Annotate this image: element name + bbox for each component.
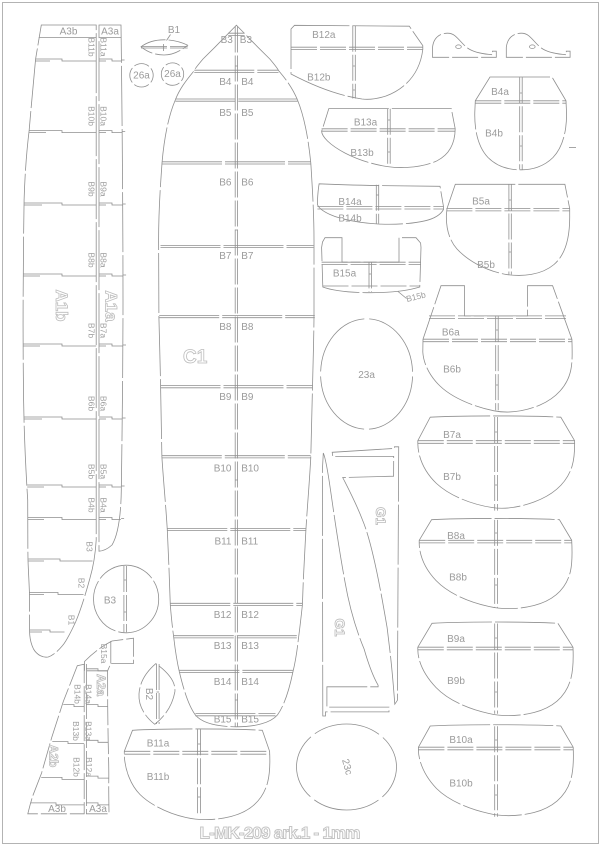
- svg-text:B4a: B4a: [491, 87, 509, 98]
- svg-text:A2a: A2a: [94, 674, 108, 696]
- svg-text:B9b: B9b: [87, 181, 97, 196]
- svg-text:B9a: B9a: [99, 181, 109, 196]
- svg-text:B10b: B10b: [449, 779, 473, 790]
- svg-text:B4a: B4a: [99, 497, 109, 512]
- svg-text:B12a: B12a: [312, 30, 336, 41]
- svg-text:B7: B7: [241, 251, 254, 262]
- svg-text:B6a: B6a: [442, 328, 460, 339]
- svg-text:26a: 26a: [164, 69, 181, 80]
- svg-text:B6b: B6b: [443, 365, 461, 376]
- svg-text:B5: B5: [241, 108, 254, 119]
- svg-text:B7a: B7a: [443, 430, 461, 441]
- svg-text:B4: B4: [241, 77, 254, 88]
- svg-text:B4b: B4b: [87, 497, 97, 512]
- svg-text:B11: B11: [214, 537, 231, 548]
- svg-text:B14b: B14b: [338, 214, 362, 225]
- svg-text:B10a: B10a: [449, 735, 473, 746]
- svg-text:B12b: B12b: [72, 757, 82, 777]
- svg-text:B15: B15: [214, 715, 232, 726]
- svg-text:B4: B4: [219, 77, 232, 88]
- svg-text:B8b: B8b: [87, 252, 97, 267]
- svg-text:B6: B6: [219, 178, 232, 189]
- svg-text:A1b: A1b: [52, 289, 71, 321]
- svg-text:B11b: B11b: [147, 772, 170, 783]
- svg-text:B13: B13: [241, 641, 259, 652]
- svg-text:B10b: B10b: [87, 106, 97, 126]
- svg-text:B6b: B6b: [87, 396, 97, 411]
- svg-text:B6: B6: [241, 178, 254, 189]
- svg-text:B11: B11: [241, 537, 258, 548]
- svg-text:B9: B9: [219, 392, 232, 403]
- svg-text:A3a: A3a: [101, 26, 119, 37]
- svg-text:B2: B2: [77, 578, 87, 589]
- svg-text:B15a: B15a: [333, 269, 357, 280]
- svg-text:A3b: A3b: [48, 804, 66, 815]
- svg-text:A3b: A3b: [60, 26, 78, 37]
- svg-text:B5b: B5b: [87, 464, 97, 479]
- svg-text:B10a: B10a: [99, 106, 109, 126]
- svg-text:B14a: B14a: [338, 197, 362, 208]
- svg-text:B15a: B15a: [99, 644, 109, 664]
- svg-text:B7: B7: [219, 251, 232, 262]
- svg-text:B5b: B5b: [477, 260, 495, 271]
- svg-text:B3: B3: [104, 596, 117, 607]
- svg-text:B1: B1: [168, 25, 181, 36]
- svg-text:C1: C1: [183, 347, 208, 368]
- svg-text:B13b: B13b: [71, 721, 81, 741]
- svg-text:B1: B1: [67, 615, 77, 626]
- svg-text:B10: B10: [241, 464, 259, 475]
- svg-text:B7a: B7a: [99, 323, 109, 338]
- svg-text:B2: B2: [143, 688, 154, 701]
- svg-text:B6a: B6a: [99, 396, 109, 411]
- svg-text:B7b: B7b: [87, 323, 97, 338]
- svg-text:B8a: B8a: [99, 252, 109, 267]
- svg-text:B14a: B14a: [84, 684, 94, 704]
- svg-text:A3a: A3a: [89, 804, 107, 815]
- svg-text:B11b: B11b: [87, 37, 97, 56]
- svg-text:B12b: B12b: [307, 73, 331, 84]
- svg-text:B12: B12: [241, 610, 259, 621]
- svg-text:B11a: B11a: [147, 739, 170, 750]
- svg-text:B13a: B13a: [354, 118, 378, 129]
- svg-text:B3: B3: [240, 35, 253, 46]
- svg-text:G1: G1: [373, 507, 388, 526]
- svg-text:A1a: A1a: [102, 290, 121, 322]
- svg-text:L-MK-209 ark.1 - 1mm: L-MK-209 ark.1 - 1mm: [200, 824, 361, 843]
- svg-text:B13: B13: [214, 641, 232, 652]
- svg-text:B9b: B9b: [447, 676, 465, 687]
- svg-text:B11a: B11a: [99, 37, 109, 56]
- svg-text:B4b: B4b: [485, 129, 503, 140]
- svg-text:B14: B14: [241, 677, 259, 688]
- svg-text:B9: B9: [241, 392, 254, 403]
- svg-text:B8b: B8b: [449, 573, 467, 584]
- svg-text:B13a: B13a: [84, 721, 94, 741]
- svg-text:B12: B12: [214, 610, 232, 621]
- svg-text:B7b: B7b: [443, 472, 461, 483]
- svg-text:A2b: A2b: [47, 745, 61, 768]
- svg-text:B13b: B13b: [350, 148, 374, 159]
- svg-text:B14b: B14b: [73, 684, 83, 704]
- svg-text:B3: B3: [221, 35, 234, 46]
- svg-text:B8: B8: [241, 322, 254, 333]
- svg-text:B3: B3: [85, 541, 95, 552]
- svg-text:23a: 23a: [358, 370, 375, 381]
- svg-text:B5: B5: [219, 108, 232, 119]
- svg-text:B5a: B5a: [472, 197, 490, 208]
- svg-text:B8a: B8a: [447, 531, 465, 542]
- svg-text:B12a: B12a: [84, 757, 94, 777]
- svg-text:B14: B14: [214, 677, 232, 688]
- svg-text:B10: B10: [214, 464, 232, 475]
- svg-text:B9a: B9a: [447, 634, 465, 645]
- svg-text:B8: B8: [219, 322, 232, 333]
- svg-text:G1: G1: [332, 618, 347, 637]
- svg-text:B15: B15: [241, 715, 259, 726]
- svg-text:B5a: B5a: [99, 464, 109, 479]
- svg-text:26a: 26a: [133, 70, 150, 81]
